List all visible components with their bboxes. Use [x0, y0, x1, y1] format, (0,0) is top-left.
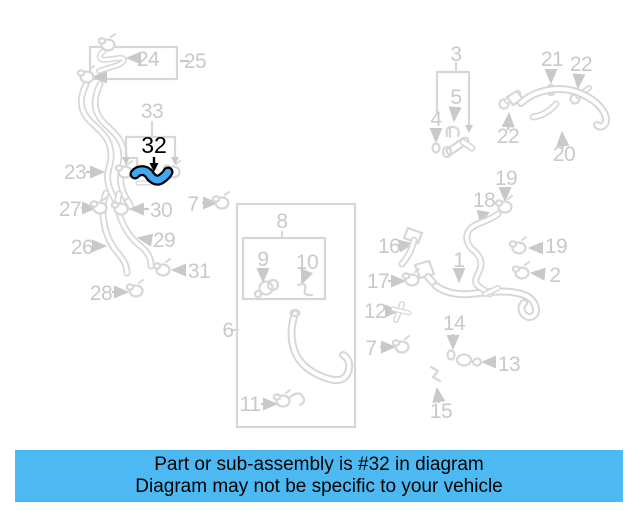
- clamp-icon: [213, 192, 229, 209]
- part-label-19b: 19: [545, 235, 567, 258]
- part-10-clip: [298, 284, 312, 295]
- part-label-32: 32: [141, 132, 167, 158]
- part-label-24: 24: [137, 48, 160, 71]
- clamp-icon: [510, 237, 526, 254]
- part-label-11: 11: [240, 393, 261, 416]
- part-15-clip: [431, 367, 440, 381]
- part-label-1: 1: [453, 249, 464, 272]
- part-label-20: 20: [553, 143, 575, 166]
- clamp-icon: [403, 269, 419, 286]
- tube-23-a: [81, 82, 119, 207]
- part-label-18: 18: [473, 189, 495, 212]
- part-label-29: 29: [153, 229, 175, 252]
- part-label-22a: 22: [570, 53, 592, 76]
- part-14-oring: [448, 351, 455, 360]
- part-label-31: 31: [188, 260, 210, 283]
- part-label-6: 6: [222, 319, 233, 342]
- arrow-2: [532, 273, 543, 274]
- top-right-parts: [433, 63, 607, 157]
- parts-diagram-page: 24 25 33 23 27 30 7 26 29 31 28 8 9 10 6…: [0, 0, 640, 512]
- part-label-22b: 22: [497, 125, 519, 148]
- part-label-10: 10: [296, 251, 318, 274]
- part-label-26: 26: [71, 236, 93, 259]
- clamp-icon: [99, 34, 115, 51]
- part-label-7a: 7: [187, 193, 198, 216]
- part-label-15: 15: [430, 400, 452, 423]
- part-label-19a: 19: [495, 167, 517, 190]
- part-label-13: 13: [498, 353, 520, 376]
- part-label-9: 9: [257, 248, 268, 271]
- part-label-8: 8: [276, 210, 287, 233]
- part-5-clip: [447, 127, 459, 136]
- clamp-icon: [513, 262, 529, 279]
- arrow-10: [302, 273, 306, 283]
- clamp-icon: [127, 280, 143, 297]
- clamp-icon: [274, 390, 290, 407]
- banner-line-1: Part or sub-assembly is #32 in diagram: [15, 454, 623, 476]
- clamp-icon: [154, 259, 170, 276]
- part-label-21: 21: [541, 48, 563, 71]
- part-label-28: 28: [90, 282, 112, 305]
- part-label-17: 17: [367, 270, 389, 293]
- part-4-oring: [433, 144, 440, 153]
- arrow-5: [454, 108, 455, 120]
- part-label-14: 14: [443, 312, 466, 335]
- part-11-clip: [290, 394, 304, 406]
- part-label-12: 12: [364, 300, 386, 323]
- parts-diagram: 24 25 33 23 27 30 7 26 29 31 28 8 9 10 6…: [0, 0, 640, 450]
- clamp-icon: [78, 66, 94, 83]
- part-label-5: 5: [450, 86, 461, 109]
- part-label-7b: 7: [365, 337, 376, 360]
- banner-line-2: Diagram may not be specific to your vehi…: [15, 476, 623, 498]
- highlight-banner: Part or sub-assembly is #32 in diagram D…: [15, 450, 623, 502]
- part-label-23: 23: [64, 161, 86, 184]
- part-label-2: 2: [549, 264, 560, 287]
- part-label-33: 33: [141, 100, 163, 123]
- hose-6: [292, 314, 350, 380]
- clamp-icon: [91, 197, 107, 214]
- part-label-16: 16: [378, 235, 400, 258]
- highlighted-part-32[interactable]: 32: [135, 132, 168, 180]
- part-13-connector: [457, 355, 471, 366]
- arrow-29: [139, 238, 151, 240]
- clamp-icon: [393, 336, 409, 353]
- part-label-4: 4: [430, 108, 442, 131]
- part-label-25: 25: [184, 50, 206, 73]
- part-label-27: 27: [59, 198, 81, 221]
- part-label-3: 3: [450, 43, 461, 66]
- part-label-30: 30: [150, 199, 172, 222]
